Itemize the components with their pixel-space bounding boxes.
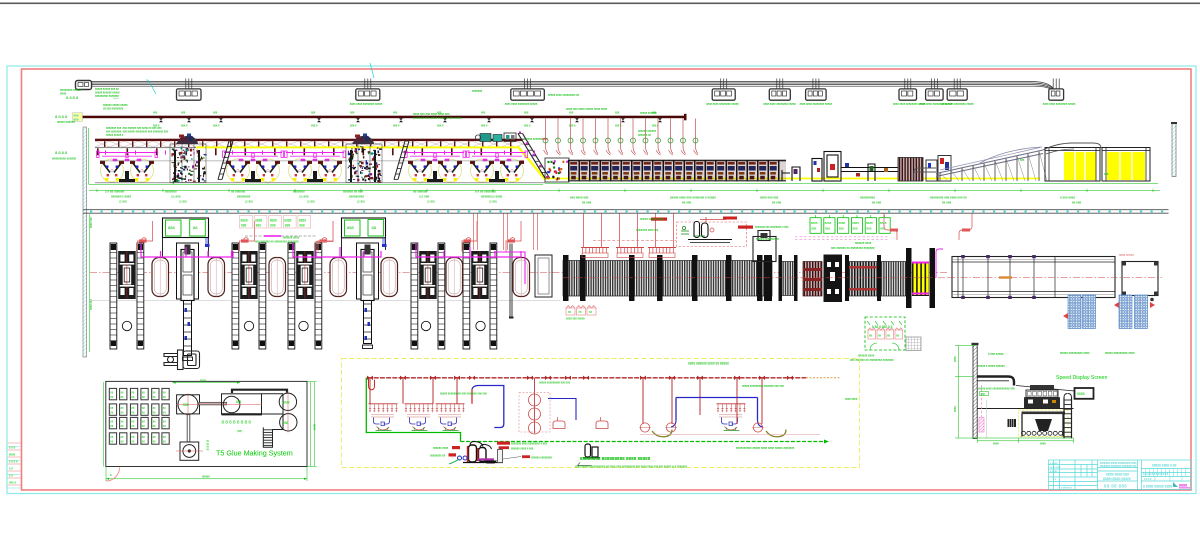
svg-text:888888 8888: 888888 8888 (858, 354, 875, 358)
svg-text:(2) 888: (2) 888 (299, 195, 309, 199)
svg-text:88888 888888888 8888888 888 88: 88888 888888888 8888888 888 888 (742, 384, 784, 388)
svg-text:88888 888888888 8888: 88888 888888888 8888 (1060, 351, 1090, 355)
svg-text:8888: 8888 (299, 219, 306, 223)
svg-text:8 8: 8 8 (9, 474, 13, 478)
svg-text:8 8 888: 8 8 888 (1050, 463, 1058, 465)
svg-text:88888888 888888888 8888 88888: 88888888 888888888 8888 88888 (580, 456, 651, 461)
svg-text:8888 888 88888: 8888 888 88888 (566, 317, 585, 321)
svg-text:88: 88 (372, 225, 377, 230)
svg-text:888: 888 (283, 421, 289, 425)
svg-text:88 888: 88 888 (582, 201, 592, 205)
svg-text:8888888: 8888888 (472, 89, 483, 93)
svg-text:888 8: 888 8 (481, 124, 488, 128)
svg-text:888 8: 888 8 (9, 481, 16, 485)
svg-text:888 8: 888 8 (213, 124, 220, 128)
svg-text:888888888: 888888888 (349, 195, 364, 199)
svg-text:88 888888: 88 888888 (413, 190, 428, 194)
svg-text:88: 88 (896, 334, 900, 338)
svg-text:888: 888 (241, 224, 247, 228)
svg-text:(2 88): (2 88) (245, 200, 253, 204)
svg-text:888: 888 (153, 111, 158, 115)
svg-text:88888 8 88888 888888: 88888 8 88888 888888 (978, 364, 1005, 368)
svg-text:888: 888 (839, 227, 844, 231)
svg-text:8888 8888 88888888 88888: 8888 8888 88888888 88888 (763, 102, 796, 106)
svg-text:8 8 8 8: 8 8 8 8 (9, 460, 18, 464)
svg-text:888: 888 (811, 227, 816, 231)
svg-text:8888888 888 88888888 8 888: 8888888 888 88888888 8 888 (755, 226, 789, 229)
svg-text:(88): (88) (237, 429, 242, 433)
svg-text:8.8.8.8: 8.8.8.8 (55, 150, 68, 155)
svg-text:8888: 8888 (283, 400, 290, 404)
svg-text:88888 888888888 888 8888888 88: 88888 888888888 888 8888888 888 888 (440, 392, 487, 396)
svg-text:888888 888888 8888: 888888 888888 8888 (640, 218, 664, 221)
svg-text:888888 88888888: 888888 88888888 (531, 455, 552, 459)
svg-text:88888-8888-8-88: 88888-8888-8-88 (1152, 464, 1177, 468)
svg-text:888888 8888 8 888: 888888 8888 8 888 (511, 446, 534, 450)
svg-text:8 8 8 8 8 8 8 8 8 8 8 8: 8 8 8 8 8 8 8 8 8 8 8 8 (1143, 472, 1169, 476)
svg-text:88888 88888 888 88: 88888 88888 888 88 (95, 87, 119, 91)
svg-text:(2 88): (2 88) (179, 200, 187, 204)
svg-text:88888 888888888 888 888: 88888 888888888 888 888 (539, 381, 571, 385)
svg-text:8888888 888. 888 888888 888 88: 8888888 888. 888 888888 888 8888 88 888 … (106, 126, 162, 130)
svg-text:8888×8888×888/8: 8888×8888×888/8 (1103, 477, 1131, 481)
svg-text:8888 888 888 8888 8888 888: 8888 888 888 8888 8888 888 (413, 112, 450, 116)
svg-text:8888: 8888 (880, 221, 887, 225)
svg-text:888: 888 (853, 227, 858, 231)
svg-text:8888: 8888 (811, 221, 818, 225)
svg-text:888 888888 88 88888888 8888888: 888 888888 88 88888888 8888888 (255, 240, 299, 244)
svg-text:8888: 8888 (953, 406, 957, 412)
svg-text:88 88 888: 88 88 888 (1104, 484, 1127, 489)
svg-text:888888888 888888: 888888888 888888 (52, 157, 77, 161)
svg-text:88 888: 88 888 (942, 201, 952, 205)
svg-text:888888 888888: 888888 888888 (638, 129, 657, 133)
svg-text:888: 888 (181, 111, 186, 115)
svg-text:88888888 8888 888: 88888888 8888 888 (636, 229, 659, 232)
svg-text:8888888: 8888888 (293, 190, 305, 194)
svg-text:888: 888 (347, 225, 354, 230)
svg-text:8888: 8888 (255, 219, 262, 223)
svg-text:8888: 8888 (284, 219, 291, 223)
svg-text:88 88 8888: 88 88 8888 (1050, 467, 1062, 469)
svg-text:88888 888888: 88888 888888 (640, 111, 657, 115)
svg-text:88888888 88888 8888888888 8: 88888888 88888 8888888888 8888 (1100, 463, 1137, 465)
svg-text:8888: 8888 (953, 356, 957, 362)
svg-text:888 888888 88 88888888 8888888: 888 888888 88 88888888 8888888 (850, 358, 894, 362)
svg-text:888: 888 (270, 224, 276, 228)
svg-text:888 8: 888 8 (350, 124, 357, 128)
svg-text:8888: 8888 (825, 221, 832, 225)
svg-text:88 888: 88 888 (682, 201, 692, 205)
svg-text:888888/2 8888: 888888/2 8888 (111, 195, 131, 199)
svg-text:888: 888 (183, 403, 189, 407)
svg-text:(2 88): (2 88) (489, 200, 497, 204)
svg-text:88888888: 88888888 (237, 195, 251, 199)
svg-text:8 8 8: 8 8 8 (9, 446, 16, 450)
svg-text:888 8: 888 8 (393, 124, 400, 128)
svg-text:88888 8888888888: 88888 8888888888 (525, 137, 548, 141)
svg-text:8 8 8 8: 8 8 8 8 (206, 440, 210, 450)
svg-text:888888 8888: 888888 8888 (433, 446, 449, 450)
svg-text:8888: 8888 (993, 442, 999, 446)
svg-text:8888 888 8888 88888 8888 888: 8888 888 8888 88888 8888 8888 (566, 107, 608, 111)
svg-text:88888: 88888 (202, 475, 210, 479)
svg-text:888 8888 888: 888 8888 888 (570, 196, 589, 200)
svg-text:8 8 8 8 8 8 8 8: 8 8 8 8 8 8 8 8 (222, 420, 252, 425)
svg-text:888: 888 (256, 224, 262, 228)
svg-text:8888 8888: 8888 8888 (845, 397, 858, 401)
svg-text:8888 8888 88888888 88888: 8888 8888 88888888 88888 (505, 102, 538, 106)
svg-text:8 8888 88888 8888: 8 8888 88888 8888 (1143, 485, 1172, 489)
svg-text:8888 8888 88888888 88888: 8888 8888 88888888 88888 (1043, 102, 1076, 106)
svg-text:88888 8 88: 88888 8 88 (638, 133, 652, 137)
svg-text:88888888 888 8888 888 88: 88888888 888 8888 888 88 (930, 196, 967, 200)
svg-text:88888 888888 88888: 88888 888888 88888 (95, 91, 120, 95)
svg-text:888 8: 888 8 (311, 124, 318, 128)
svg-text:8888: 8888 (852, 221, 859, 225)
svg-text:T5 Glue Making System: T5 Glue Making System (216, 449, 293, 458)
svg-text:888: 888 (168, 225, 175, 230)
svg-text:88888 88888,8: 88888 88888,8 (106, 133, 124, 137)
svg-text:888888(2) 8888: 888888(2) 8888 (481, 195, 503, 199)
svg-text:(2 88): (2 88) (427, 200, 435, 204)
svg-text:888 8: 888 8 (181, 124, 188, 128)
svg-text:888888 88 888: 888888 88 888 (343, 190, 363, 194)
svg-text:8888: 8888 (1077, 392, 1085, 396)
svg-text:88: 88 (878, 334, 882, 338)
svg-text:888: 888 (825, 227, 830, 231)
svg-text:888: 888 (350, 111, 355, 115)
svg-text:88 888: 88 888 (772, 201, 782, 205)
svg-text:(21 888: (21 888 (419, 195, 430, 199)
svg-text:888: 888 (285, 224, 291, 228)
svg-text:8 8: 8 8 (9, 467, 13, 471)
svg-text:888: 888 (615, 111, 620, 115)
svg-text:88: 88 (869, 334, 873, 338)
svg-text:88: 88 (887, 334, 891, 338)
svg-text:88 888: 88 888 (1072, 201, 1082, 205)
svg-text:888888888 8888888: 888888888 8888888 (95, 94, 119, 98)
svg-text:(2 88): (2 88) (307, 200, 315, 204)
svg-text:888 8: 888 8 (569, 124, 576, 128)
svg-text:8.8.8.8: 8.8.8.8 (55, 114, 68, 119)
svg-text:88888888 88888888 88888888: 88888888 88888888 88888888 888 (1100, 466, 1137, 468)
svg-text:8888888 8888 88888888 8 888: 8888888 8888 88888888 8 888 (511, 442, 548, 446)
svg-text:8 8 888: 8 8 888 (1050, 471, 1058, 473)
svg-text:888888 88888 88888: 888888 88888 88888 (103, 103, 128, 107)
svg-text:888: 888 (311, 111, 316, 115)
svg-text:8888 8888 88888888 88888: 8888 8888 88888888 88888 (941, 102, 974, 106)
svg-text:8888: 8888 (1040, 442, 1046, 446)
svg-text:Speed Display Screen: Speed Display Screen (1056, 375, 1107, 381)
svg-text:8 888888 8: 8 888888 8 (1061, 488, 1073, 490)
svg-text:8888: 8888 (866, 221, 873, 225)
svg-text:8888 88888 88888888888 88 8888: 8888 88888 88888888888 88 8888 (888 8888… (575, 464, 688, 468)
svg-text:(8 888 88 888) (8888 8 888) (8: (8 888 88 888) (8888 8 888) (8 888 8 888… (413, 116, 462, 120)
svg-text:888 8: 888 8 (615, 124, 622, 128)
svg-text:8888 888888 8888 88 88888: 8888 888888 8888 88 88888 (688, 362, 729, 366)
svg-text:888: 888 (299, 224, 305, 228)
svg-text:8888 888 888: 8888 888 888 (760, 196, 779, 200)
svg-text:8888: 8888 (313, 424, 317, 431)
svg-text:8888: 8888 (1179, 484, 1187, 488)
svg-text:888 888888 88 88888888 8888888: 888 888888 88 88888888 8888888 (831, 246, 875, 250)
svg-text:88888 888888888 8888: 88888 888888888 8888 (1105, 351, 1135, 355)
svg-text:8888: 8888 (241, 219, 248, 223)
svg-text:8 888 8888: 8 888 8888 (1060, 196, 1075, 200)
svg-text:88 888: 88 888 (872, 201, 882, 205)
svg-text:888888888: 888888888 (860, 196, 875, 200)
svg-text:888888 8888888888: 888888 8888888888 (756, 238, 780, 241)
svg-text:8888: 8888 (9, 453, 16, 457)
svg-text:8 8 8 8: 8 8 8 8 (1144, 478, 1152, 481)
svg-text:888: 888 (866, 227, 871, 231)
svg-text:8888: 8888 (200, 378, 207, 382)
svg-text:(2 88): (2 88) (119, 200, 127, 204)
svg-text:8888: 8888 (270, 219, 277, 223)
svg-text:888888 8888: 888888 8888 (855, 241, 872, 245)
svg-text:8888 8888 88888888 88888: 8888 8888 88888888 88888 (350, 102, 383, 106)
svg-text:888: 888 (524, 111, 529, 115)
svg-text:8.8.8.8: 8.8.8.8 (66, 95, 79, 100)
svg-text:88888 888888: 88888 888888 (57, 120, 75, 124)
svg-text:5 8 88 888888: 5 8 88 888888 (105, 190, 125, 194)
svg-text:888 8888888. 888 88888 8888888: 888 8888888. 888 88888 88888888 888 8888… (106, 130, 169, 134)
svg-text:888: 888 (569, 111, 574, 115)
svg-text:888: 888 (981, 392, 986, 396)
svg-text:8888-8888-888: 8888-8888-888 (1106, 473, 1129, 477)
svg-text:888: 888 (1020, 158, 1025, 162)
svg-text:8888: 8888 (838, 221, 845, 225)
svg-text:8888 8/8/88: 8888 8/8/88 (1119, 253, 1134, 257)
svg-text:888: 888 (393, 111, 398, 115)
svg-text:888: 888 (1104, 172, 1109, 176)
svg-text:88888 8888 888888888888 888: 88888 8888 888888888888 888 (978, 387, 1015, 391)
svg-text:(2) 888: (2) 888 (171, 195, 181, 199)
svg-text:88888888 88: 88888888 88 (430, 453, 446, 457)
svg-text:888: 888 (236, 400, 242, 404)
svg-text:888 8: 888 8 (437, 124, 444, 128)
svg-text:888 8: 888 8 (524, 124, 531, 128)
svg-text:888: 888 (213, 111, 218, 115)
svg-text:8888 888: 8888 888 (89, 217, 93, 228)
svg-text:88 888888: 88 888888 (231, 190, 246, 194)
svg-text:888: 888 (481, 111, 486, 115)
svg-text:88 888 88888888: 88 888 88888888 (103, 107, 124, 111)
svg-text:88888 8888 888888888 88: 88888 8888 888888888 88 (548, 93, 580, 97)
svg-text:8888 8888 88888888 88888: 8888 8888 88888888 88888 (800, 102, 833, 106)
svg-text:8888888888 88888 8888 8888 888: 8888888888 88888 8888 8888 88888 8888888 (736, 446, 795, 450)
svg-text:8888 8888 88888888 88888: 8888 8888 88888888 88888 (706, 102, 739, 106)
svg-text:88888 8888 888 8888888 8 88888: 88888 8888 888 8888888 8 88888 (670, 196, 716, 200)
svg-text:(2 88): (2 88) (357, 200, 365, 204)
svg-text:8 88 8 888 8 8: 8 88 8 888 8 8 (872, 325, 893, 329)
svg-text:88: 88 (193, 225, 198, 230)
svg-text:8 8 88 8888888: 8 8 88 8888888 (475, 190, 496, 194)
svg-text:8 888 88888: 8 888 88888 (988, 352, 1004, 356)
svg-text:8888888: 8888888 (165, 190, 177, 194)
